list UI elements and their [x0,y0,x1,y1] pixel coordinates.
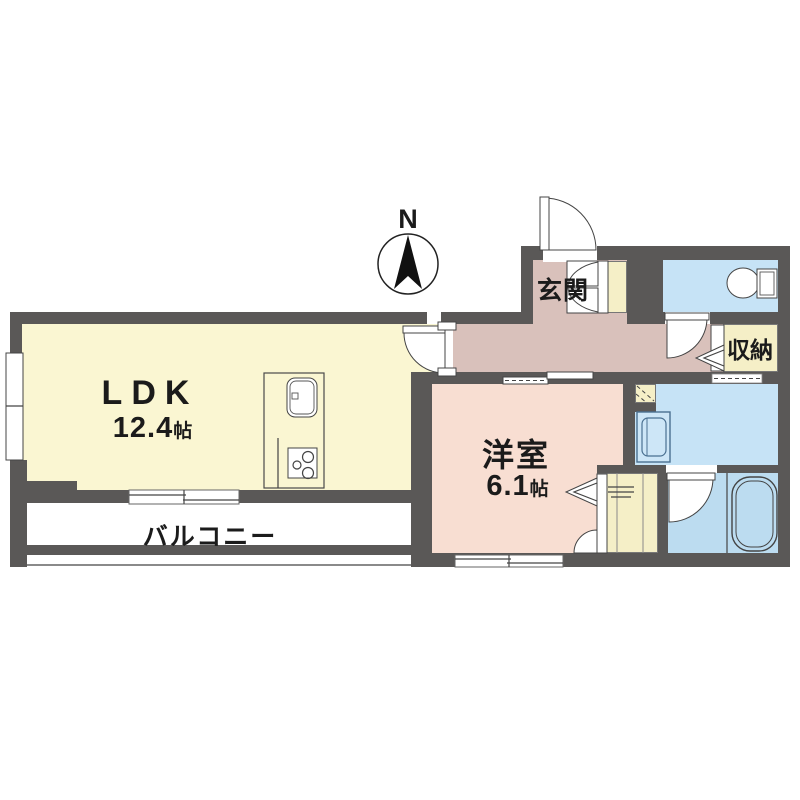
room-ldk-upper [411,324,441,372]
storage-label: 収納 [721,331,779,365]
shoe-cabinet [607,261,627,313]
ldk-door-opening [441,330,453,368]
closet [597,473,658,553]
entrance-label: 玄関 [527,271,599,307]
wall [10,312,533,324]
room-washroom [635,384,778,465]
entrance-door-opening [543,244,597,262]
wall [411,372,790,384]
western-room-size-label: 6.1帖 [455,470,581,503]
ldk-size-unit: 帖 [173,421,193,442]
western-size-value: 6.1 [486,470,529,502]
wall [633,403,656,412]
room-ldk [22,324,411,490]
ldk-size-label: 12.4帖 [85,412,221,445]
wall-jamb [427,312,441,324]
floor-plan: N LDK 12.4帖 洋室 6.1帖 玄関 収納 バルコニー [0,0,800,800]
wall [627,246,663,324]
wall [411,384,432,555]
room-toilet [663,260,778,312]
wall [10,460,27,567]
room-hallway [453,324,723,372]
balcony-outer-line [27,564,411,566]
wall [10,490,422,503]
balcony-label: バルコニー [105,517,315,553]
north-arrow-icon [378,234,438,294]
wall [623,384,635,473]
entrance-door-icon [540,197,596,250]
compass-label: N [388,204,428,235]
wall [411,553,790,567]
ldk-label: LDK [85,374,215,413]
bath-door-opening [666,465,717,473]
western-size-unit: 帖 [530,479,550,500]
ldk-size-value: 12.4 [113,412,173,444]
wall [778,246,790,567]
room-bathroom [668,473,778,553]
wall [10,312,22,460]
wall [658,473,668,555]
hatch-niche [635,384,656,403]
toilet-door-opening [665,312,710,324]
